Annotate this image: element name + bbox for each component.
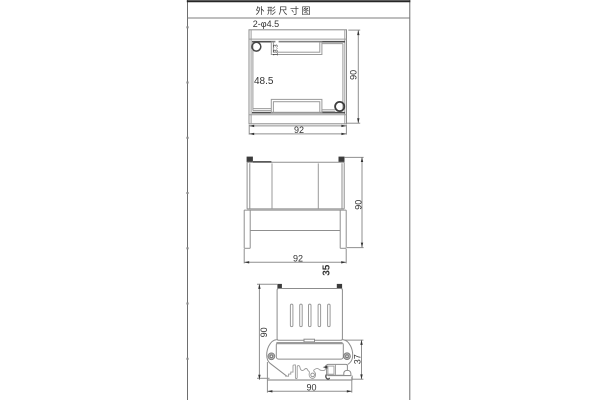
svg-text:92: 92 (294, 125, 304, 135)
svg-text:90: 90 (349, 70, 359, 80)
svg-text:35: 35 (322, 264, 333, 276)
svg-text:90: 90 (306, 383, 316, 393)
svg-text:90: 90 (259, 327, 269, 337)
svg-text:37: 37 (352, 354, 362, 364)
svg-text:90: 90 (354, 200, 364, 210)
svg-text:2-φ4.5: 2-φ4.5 (253, 19, 279, 29)
svg-text:外形尺寸图: 外形尺寸图 (256, 5, 314, 16)
svg-text:92: 92 (293, 253, 303, 263)
svg-text:13.3: 13.3 (274, 44, 280, 56)
svg-text:48.5: 48.5 (254, 76, 274, 87)
